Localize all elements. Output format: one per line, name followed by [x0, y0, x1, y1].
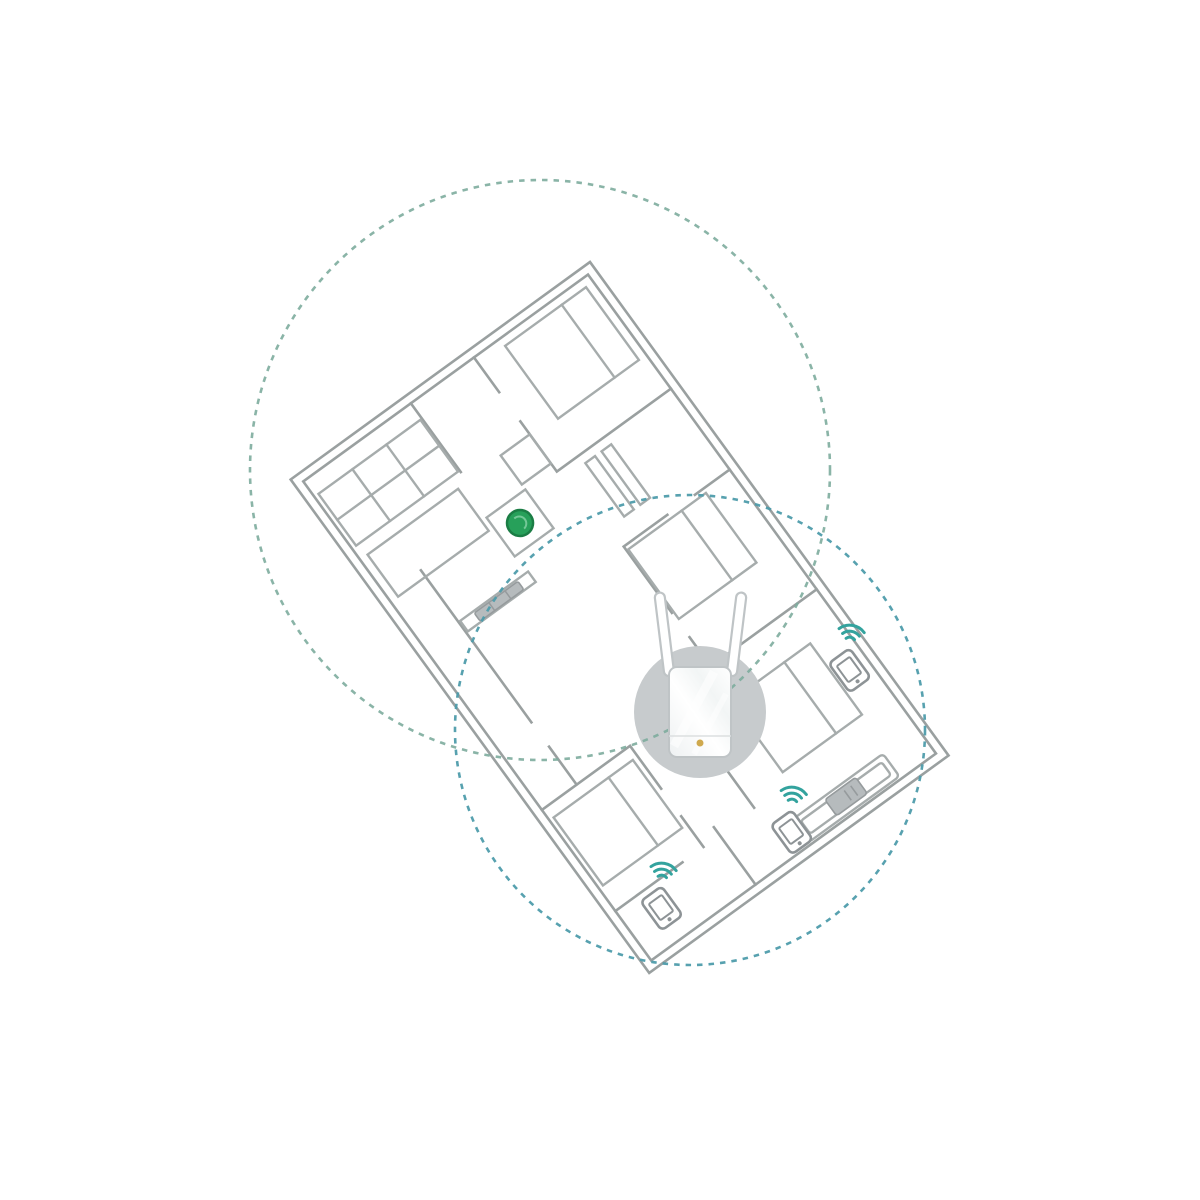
wifi-coverage-diagram — [0, 0, 1200, 1200]
house-outer-wall — [291, 262, 949, 973]
extender-logo-led — [697, 740, 704, 747]
wifi-signal-icon — [781, 780, 806, 805]
router-dot — [502, 505, 538, 541]
interior-walls — [303, 275, 936, 961]
house-inner-wall — [303, 275, 936, 961]
router-icon — [502, 505, 538, 541]
media-console-icon — [825, 777, 867, 816]
side-table — [501, 434, 551, 484]
tv-icon — [474, 581, 524, 621]
hall-shelves — [585, 444, 650, 516]
smartphone-living-area — [758, 780, 830, 855]
diagram-canvas — [0, 0, 1200, 1200]
bed-top-left — [505, 287, 639, 419]
floorplan — [291, 260, 952, 973]
